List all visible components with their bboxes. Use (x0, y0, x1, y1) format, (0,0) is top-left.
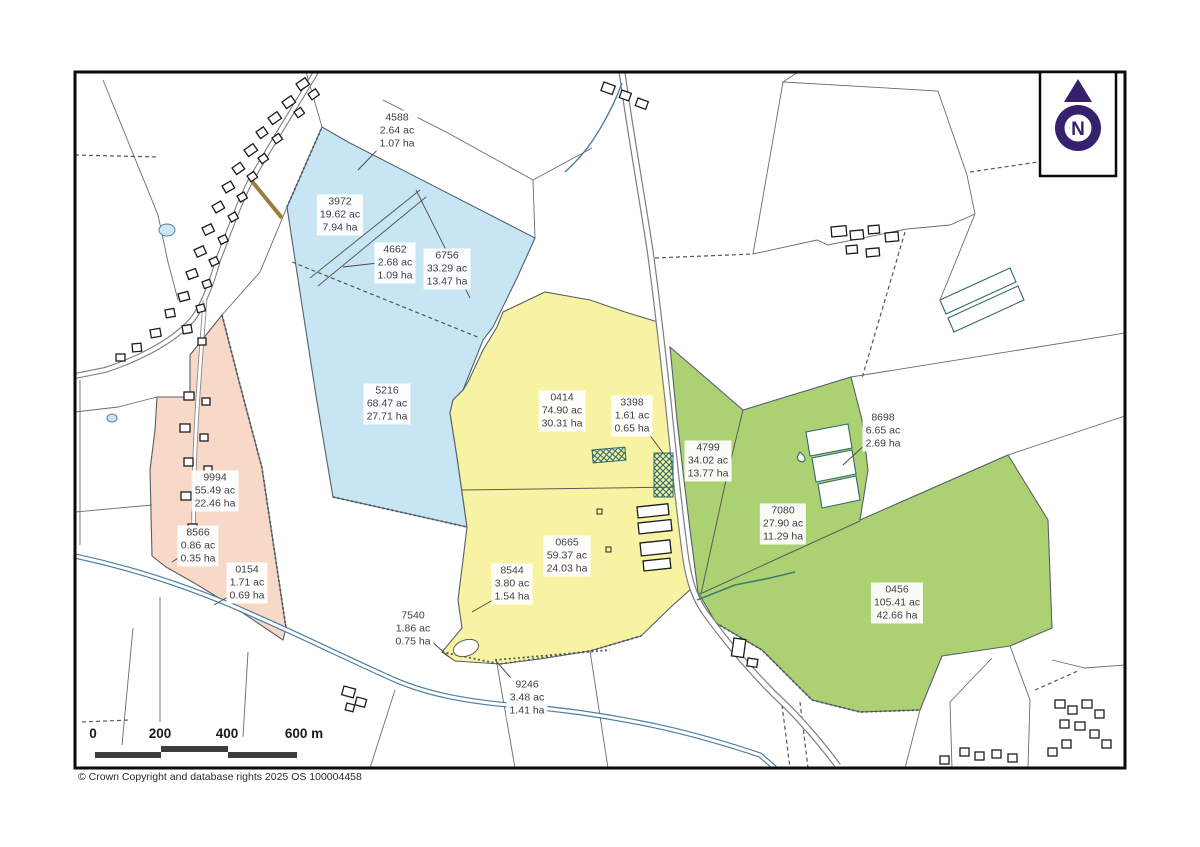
scale-tick-200: 200 (149, 726, 172, 741)
parcel-label-8544: 85443.80 ac1.54 ha (491, 563, 532, 604)
farm-track-tan (251, 180, 282, 218)
parcel-label-9994: 999455.49 ac22.46 ha (192, 470, 239, 511)
scale-bar-segment-1 (95, 752, 161, 758)
os-parcel-map-page: { "map": { "copyright": "© Crown Copyrig… (0, 0, 1200, 847)
pond-small (107, 414, 117, 422)
parcel-label-9246: 92463.48 ac1.41 ha (506, 677, 547, 718)
scale-bar-segment-2 (161, 746, 228, 752)
parcel-green-group-area[interactable] (670, 347, 1052, 712)
map-content (75, 72, 1125, 768)
parcel-label-8566: 85660.86 ac0.35 ha (177, 525, 218, 566)
parcel-label-7540: 75401.86 ac0.75 ha (392, 608, 433, 649)
field-strips-right (940, 268, 1024, 332)
crosshatch-strip-a (592, 447, 626, 463)
parcel-label-4588: 45882.64 ac1.07 ha (376, 110, 417, 151)
parcel-label-6756: 675633.29 ac13.47 ha (424, 248, 471, 289)
parcel-label-7080: 708027.90 ac11.29 ha (760, 503, 806, 544)
parcel-label-0154: 01541.71 ac0.69 ha (226, 562, 267, 603)
parcel-label-3398: 33981.61 ac0.65 ha (611, 395, 652, 436)
parcel-label-3972: 397219.62 ac7.94 ha (317, 194, 363, 235)
parcel-label-4799: 479934.02 ac13.77 ha (685, 440, 732, 481)
copyright-text: © Crown Copyright and database rights 20… (78, 771, 362, 783)
parcel-label-0665: 066559.37 ac24.03 ha (544, 535, 591, 576)
parcel-fills (150, 127, 1052, 712)
pond (159, 224, 175, 236)
scale-tick-400: 400 (216, 726, 239, 741)
map-canvas: N (0, 0, 1200, 847)
parcel-label-4662: 46622.68 ac1.09 ha (374, 242, 415, 283)
scale-tick-0: 0 (89, 726, 97, 741)
parcel-label-5216: 521668.47 ac27.71 ha (364, 383, 411, 424)
parcel-label-0456: 0456105.41 ac42.66 ha (871, 582, 923, 623)
parcel-label-0414: 041474.90 ac30.31 ha (539, 390, 586, 431)
scale-bar (95, 746, 297, 758)
north-label: N (1071, 119, 1085, 140)
scale-bar-segment-3 (228, 752, 297, 758)
scale-tick-600m: 600 m (285, 726, 323, 741)
parcel-label-8698: 86986.65 ac2.69 ha (862, 410, 903, 451)
north-arrow: N (1040, 72, 1116, 176)
crosshatch-strip-b (654, 453, 673, 497)
stream-top (565, 83, 622, 172)
